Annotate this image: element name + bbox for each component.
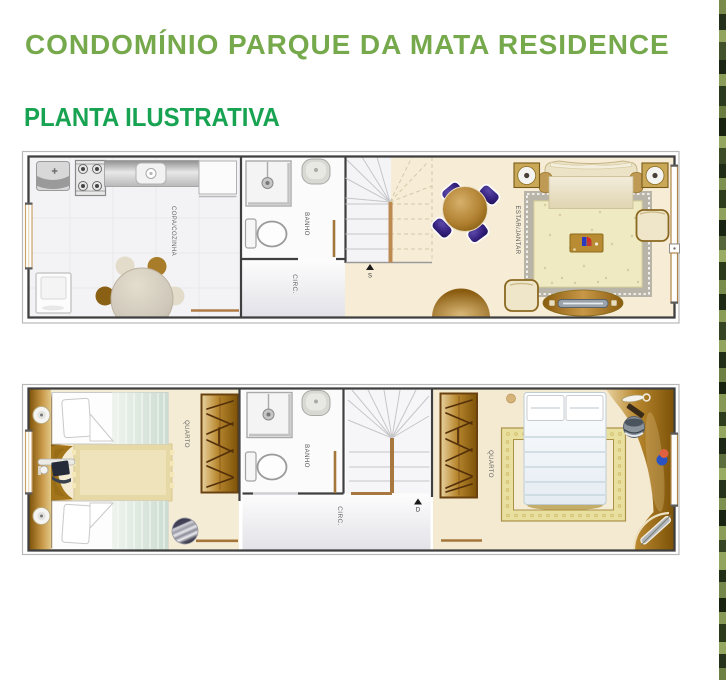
svg-text:S: S xyxy=(368,274,372,280)
svg-text:COPA/COZINHA: COPA/COZINHA xyxy=(170,206,176,256)
svg-text:QUARTO: QUARTO xyxy=(487,450,493,478)
svg-text:QUARTO: QUARTO xyxy=(183,420,189,448)
svg-text:D: D xyxy=(416,508,421,514)
svg-text:CIRC.: CIRC. xyxy=(291,274,298,294)
svg-text:BANHO: BANHO xyxy=(303,444,309,468)
svg-text:CIRC.: CIRC. xyxy=(336,506,343,526)
svg-text:ESTAR/JANTAR: ESTAR/JANTAR xyxy=(514,206,520,255)
svg-text:BANHO: BANHO xyxy=(303,212,309,236)
